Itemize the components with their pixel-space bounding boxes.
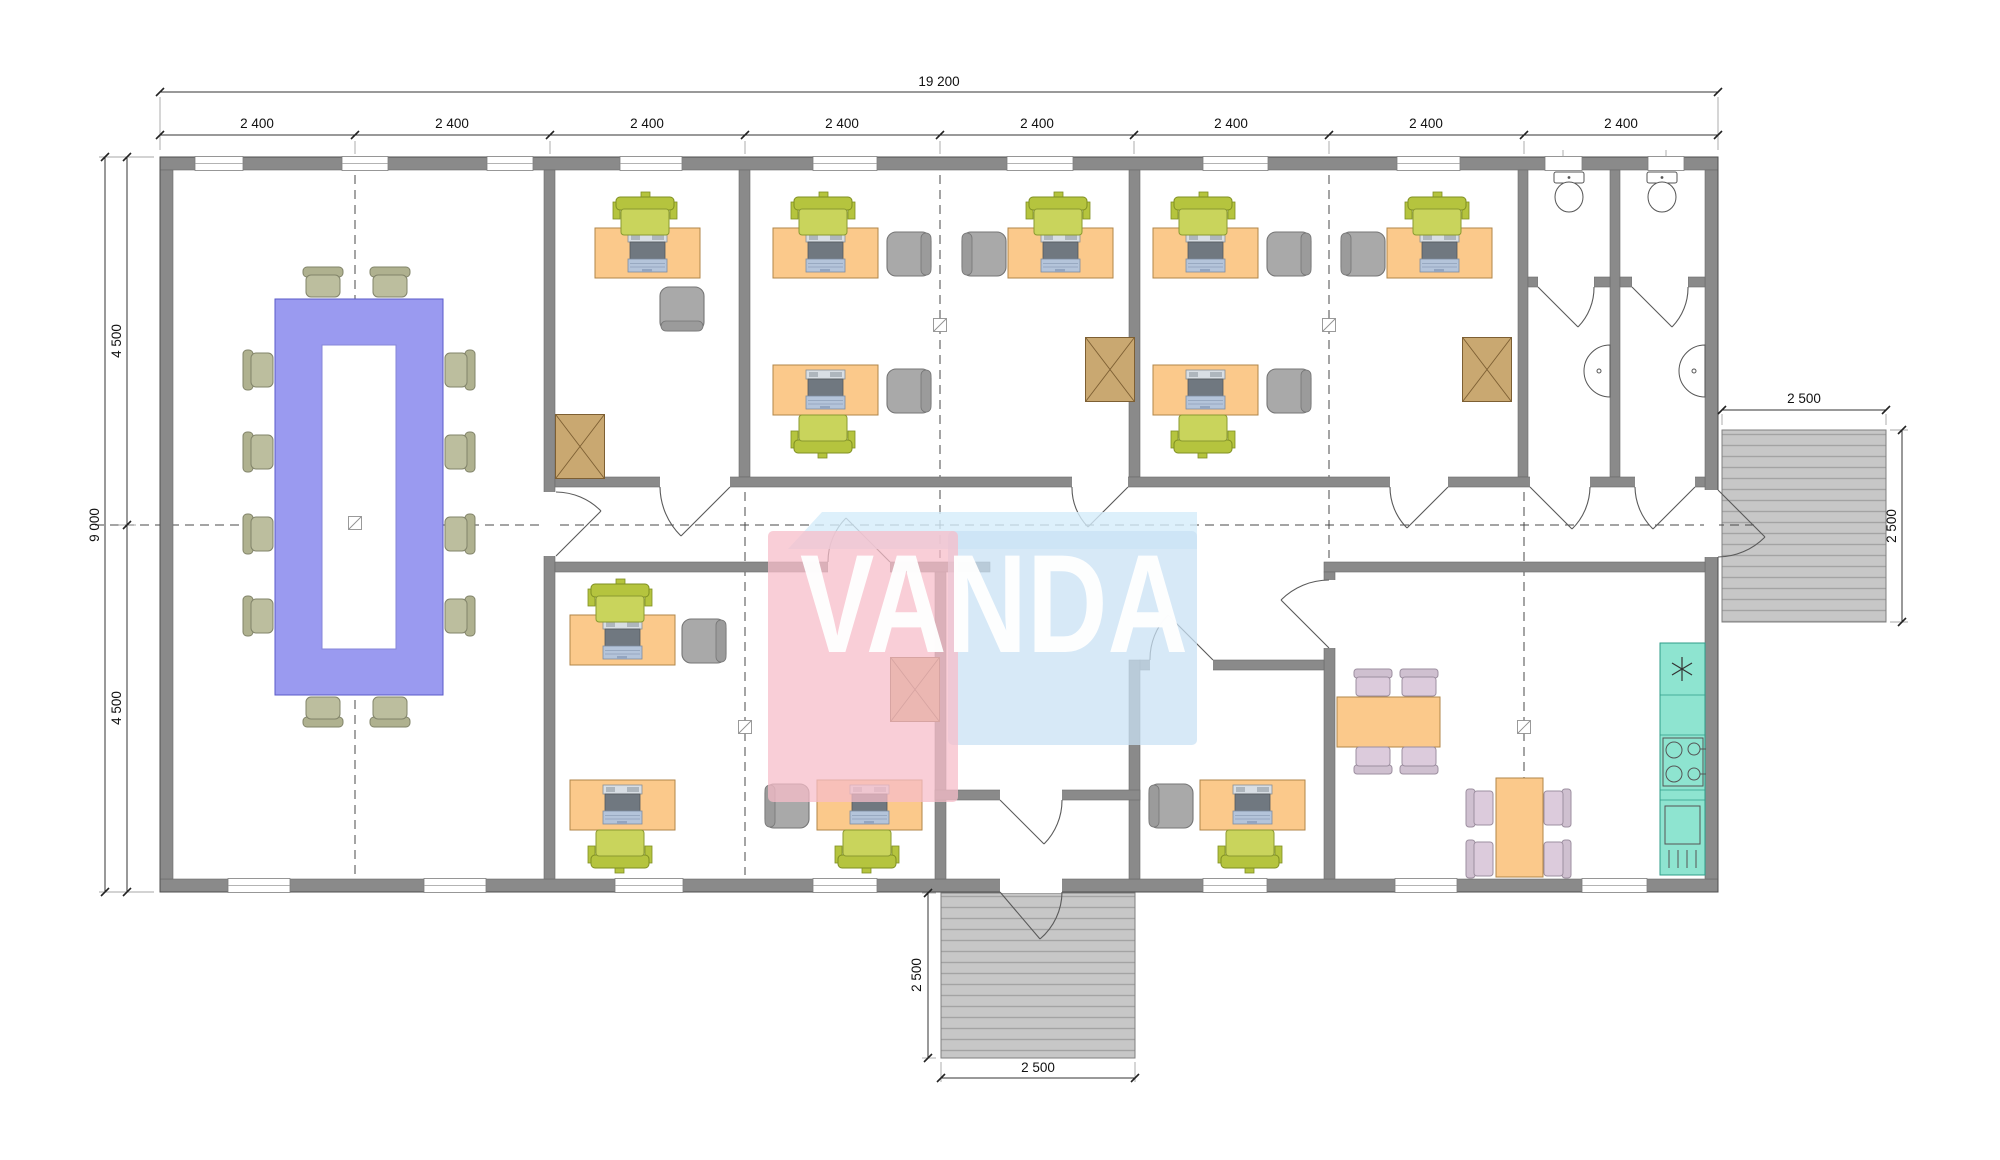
dim-bay: 2 400 [825,116,859,131]
guest-chair [660,287,704,331]
window [228,879,290,893]
conference-chair [445,514,475,554]
guest-chair [1149,784,1193,828]
bay-extensions [355,141,1524,154]
dim-bay: 2 400 [435,116,469,131]
dim-right-stair-height: 2 500 [1884,509,1899,543]
conference-chair [370,267,410,297]
task-chair [1218,830,1282,873]
window [342,157,388,171]
storage-crate [1086,338,1135,402]
window [813,157,877,171]
toilet [1554,172,1584,212]
conference-room [243,267,475,727]
conference-chair [243,432,273,472]
window [1203,879,1267,893]
dim-overall-width: 19 200 [918,74,959,89]
guest-chair [1267,369,1311,413]
dining-chair [1354,747,1392,774]
column-marker [739,721,752,734]
desk [1153,365,1258,415]
column-marker [1323,319,1336,332]
task-chair [1405,192,1469,235]
desk [570,780,675,830]
dining-chair [1400,747,1438,774]
task-chair [835,830,899,873]
guest-chair [887,232,931,276]
conference-chair [303,267,343,297]
desk [773,365,878,415]
window [424,879,486,893]
toilet [1647,172,1677,212]
watermark-logo-text: VANDA [800,525,1188,682]
task-chair [588,830,652,873]
dim-bay: 2 400 [1020,116,1054,131]
office-bottom-small [1149,780,1305,873]
floor-plan: VANDA 19 200 2 400 2 400 2 400 2 400 2 4… [0,0,2000,1160]
conference-chair [445,596,475,636]
desk [1200,780,1305,830]
task-chair [588,579,652,622]
office-top-2 [773,192,1135,458]
task-chair [613,192,677,235]
window [1007,157,1073,171]
dining-chair [1466,840,1493,878]
guest-chair [1267,232,1311,276]
guest-chair [962,232,1006,276]
dim-bay: 2 400 [1409,116,1443,131]
conference-table-opening [322,345,396,649]
bottom-stair-platform [941,893,1135,1058]
dining-chair [1466,789,1493,827]
window [1397,157,1460,171]
dining-table [1496,778,1543,877]
break-room [1337,643,1706,878]
column-marker [934,319,947,332]
dim-right-stair-width: 2 500 [1787,391,1821,406]
storage-crate [556,415,605,479]
task-chair [791,192,855,235]
dim-height-lower: 4 500 [109,691,124,725]
guest-chair [682,619,726,663]
task-chair [1171,415,1235,458]
window [487,157,533,171]
dining-chair [1544,789,1571,827]
conference-chair [243,514,273,554]
window [1582,879,1647,893]
column-marker [1518,721,1531,734]
task-chair [791,415,855,458]
window [1203,157,1268,171]
conference-chair [445,350,475,390]
window [195,157,243,171]
dining-chair [1400,669,1438,696]
sink [1584,345,1610,397]
window [620,157,682,171]
dim-bottom-stair-height: 2 500 [909,958,924,992]
dim-bay: 2 400 [240,116,274,131]
conference-chair [370,697,410,727]
guest-chair [887,369,931,413]
dining-chair [1354,669,1392,696]
column-marker [349,517,362,530]
conference-chair [243,596,273,636]
floor-plan-canvas: VANDA 19 200 2 400 2 400 2 400 2 400 2 4… [0,0,2000,1160]
storage-crate [1463,338,1512,402]
task-chair [1026,192,1090,235]
dim-bay: 2 400 [1214,116,1248,131]
window [1395,879,1457,893]
dim-bottom-stair-width: 2 500 [1021,1060,1055,1075]
guest-chair [1341,232,1385,276]
dim-bay: 2 400 [1604,116,1638,131]
sink [1679,345,1705,397]
kitchen-counter [1660,643,1706,875]
dining-table [1337,697,1440,747]
vent-window [1545,150,1582,171]
window [615,879,683,893]
conference-chair [243,350,273,390]
dim-height-upper: 4 500 [109,324,124,358]
vent-window [1648,150,1684,171]
task-chair [1171,192,1235,235]
dim-overall-height: 9 000 [87,508,102,542]
dim-bay: 2 400 [630,116,664,131]
conference-chair [445,432,475,472]
dining-chair [1544,840,1571,878]
right-stair-platform [1722,430,1886,622]
conference-chair [303,697,343,727]
window [813,879,877,893]
office-top-1 [556,192,705,479]
